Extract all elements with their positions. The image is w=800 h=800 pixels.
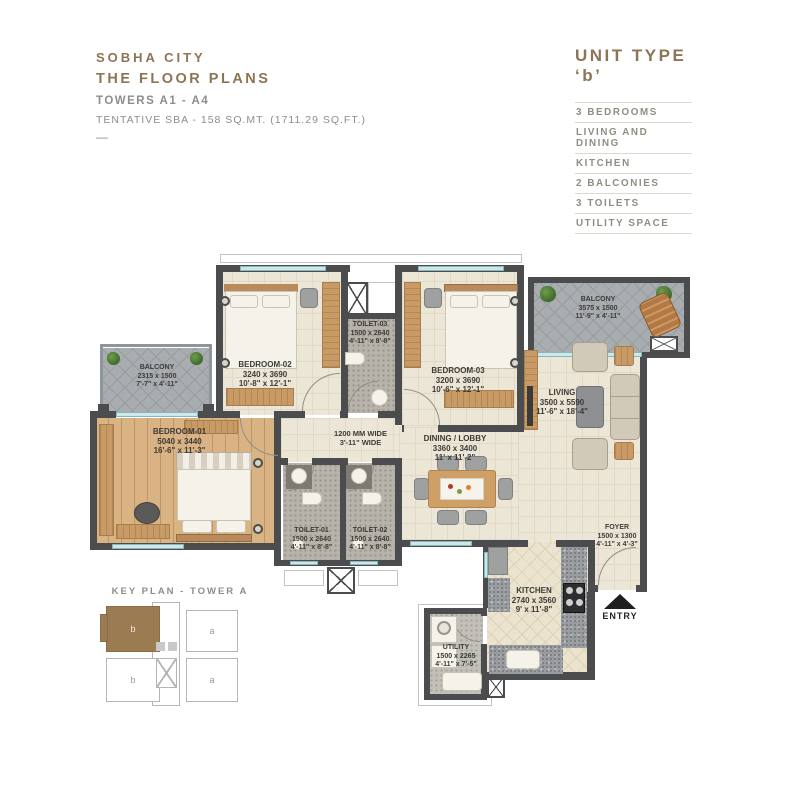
corridor-label: 1200 MM WIDE 3'-11" WIDE xyxy=(318,430,403,447)
bedroom3-label: BEDROOM-03 3200 x 3690 10'-6" x 12'-1" xyxy=(404,366,512,395)
bed1-pillow xyxy=(182,520,212,533)
sofa xyxy=(610,374,640,440)
wall-light xyxy=(253,524,263,534)
utility-label: UTILITY 1500 x 2265 4'-11" x 7'-5" xyxy=(427,644,485,670)
bed1-headboard xyxy=(176,534,252,542)
sunshade-ledge xyxy=(220,254,522,263)
balcony-right-label: BALCONY 3575 x 1500 11'-9" x 4'-11" xyxy=(548,296,648,322)
wall xyxy=(340,411,348,418)
bed2-pillow xyxy=(262,295,290,308)
unit-feature-list: 3 BEDROOMS LIVING AND DINING KITCHEN 2 B… xyxy=(575,102,705,234)
shaft-top xyxy=(346,282,368,316)
bed1-mattress xyxy=(177,469,251,521)
key-plan-unit-a1: a xyxy=(186,610,238,652)
window xyxy=(410,541,472,546)
burner xyxy=(576,587,583,594)
wall xyxy=(481,608,487,616)
wall-light xyxy=(253,458,263,468)
wall xyxy=(528,277,690,283)
side-table xyxy=(614,346,634,366)
balcony-pier xyxy=(203,404,214,416)
feature-item: LIVING AND DINING xyxy=(575,122,692,153)
key-plan-unit-b1: b xyxy=(106,606,160,652)
bed3-side-table xyxy=(424,288,442,308)
feature-item: 3 TOILETS xyxy=(575,193,692,213)
key-plan-unit-a2: a xyxy=(186,658,238,702)
toilet2-basin xyxy=(351,468,367,484)
food-plate xyxy=(457,489,462,494)
balcony-left-label: BALCONY 2315 x 1500 7'-7" x 4'-11" xyxy=(114,364,200,390)
washing-machine-door xyxy=(437,621,451,635)
dining-chair xyxy=(437,510,459,525)
wall xyxy=(640,352,647,592)
wall xyxy=(483,540,528,547)
toilet1-basin xyxy=(291,468,307,484)
unit-info-panel: UNIT TYPE ‘b’ 3 BEDROOMS LIVING AND DINI… xyxy=(575,46,705,234)
bedroom2-wardrobe xyxy=(226,388,294,406)
open-duct xyxy=(368,282,396,316)
header-left: SOBHA CITY THE FLOOR PLANS TOWERS A1 - A… xyxy=(96,50,456,144)
food-plate xyxy=(448,484,453,489)
wall xyxy=(587,592,595,680)
side-table xyxy=(614,442,634,460)
armchair xyxy=(572,438,608,470)
wall xyxy=(90,411,97,550)
key-plan-unit-b2: b xyxy=(106,658,160,702)
toilet3-shower xyxy=(371,389,388,406)
balcony-door-window xyxy=(116,412,198,417)
dash-divider: — xyxy=(96,130,456,144)
bedroom2-label: BEDROOM-02 3240 x 3690 10'-8" x 12'-1" xyxy=(210,360,320,389)
bed3-pillow xyxy=(450,295,478,308)
bed1-pillow xyxy=(216,520,246,533)
toilet2-label: TOILET-02 1500 x 2640 4'-11" x 8'-8" xyxy=(341,527,399,553)
bedroom1-desk xyxy=(116,524,170,539)
armchair xyxy=(572,342,608,372)
burner xyxy=(576,599,583,606)
living-label: LIVING 3500 x 5590 11'-6" x 18'-4" xyxy=(518,388,606,417)
bedroom3-dresser-side xyxy=(404,282,421,368)
window xyxy=(240,266,326,271)
unit-type-title: UNIT TYPE ‘b’ xyxy=(575,46,705,86)
bedroom1-label: BEDROOM-01 5040 x 3440 16'-6" x 11'-3" xyxy=(122,427,237,456)
wall xyxy=(281,458,288,465)
key-plan-unit-b1-tab xyxy=(100,614,108,642)
bed2-side-table xyxy=(300,288,318,308)
toilet3-label: TOILET-03 1500 x 2640 4'-11" x 8'-8" xyxy=(341,321,399,347)
towers-subtitle: TOWERS A1 - A4 xyxy=(96,95,456,107)
kitchen-label: KITCHEN 2740 x 3560 9' x 11'-8" xyxy=(496,586,572,615)
feature-item: 2 BALCONIES xyxy=(575,173,692,193)
wall xyxy=(341,313,402,319)
foyer-label: FOYER 1500 x 1300 4'-11" x 4'-3" xyxy=(586,524,648,550)
toilet2-sill xyxy=(358,570,398,586)
wall-light xyxy=(220,296,230,306)
dining-chair xyxy=(498,478,513,500)
wall xyxy=(424,694,487,700)
ac-ledge xyxy=(650,336,678,352)
key-plan: b a b a xyxy=(104,600,248,710)
entry-arrow-icon xyxy=(604,594,636,609)
key-plan-lift xyxy=(156,642,165,651)
dining-chair xyxy=(465,510,487,525)
floor-plan-page: SOBHA CITY THE FLOOR PLANS TOWERS A1 - A… xyxy=(0,0,800,800)
toilet1-wc xyxy=(302,492,322,505)
key-plan-lift xyxy=(168,642,177,651)
wall xyxy=(528,277,534,358)
toilet1-label: TOILET-01 1500 x 2640 4'-11" x 8'-8" xyxy=(283,527,340,553)
window xyxy=(112,544,184,549)
bed2-pillow xyxy=(230,295,258,308)
entry-label: ENTRY xyxy=(594,611,646,621)
balcony-pier xyxy=(98,404,109,416)
bed3-pillow xyxy=(482,295,510,308)
wall xyxy=(378,411,402,418)
project-name: SOBHA CITY xyxy=(96,50,456,65)
feature-item: UTILITY SPACE xyxy=(575,213,692,234)
page-title: THE FLOOR PLANS xyxy=(96,71,456,87)
key-plan-title: KEY PLAN - TOWER A xyxy=(108,586,252,597)
wall xyxy=(216,265,223,418)
dining-chair xyxy=(414,478,429,500)
wall xyxy=(588,585,598,592)
desk-chair xyxy=(134,502,160,524)
fridge xyxy=(488,547,508,575)
toilet-vent-window xyxy=(290,561,318,565)
toilet1-sill xyxy=(284,570,324,586)
table-runner xyxy=(440,478,484,500)
feature-item: KITCHEN xyxy=(575,153,692,173)
wall xyxy=(684,277,690,358)
bedroom1-wardrobe xyxy=(99,424,114,536)
toilet-vent-window xyxy=(350,561,378,565)
dining-label: DINING / LOBBY 3360 x 3400 11' x 11'-2" xyxy=(405,434,505,463)
shaft-toilets xyxy=(327,567,355,594)
toilet2-wc xyxy=(362,492,382,505)
wall-light xyxy=(510,296,520,306)
toilet3-wc xyxy=(345,352,365,365)
key-plan-stair xyxy=(156,658,177,688)
sba-subtitle: TENTATIVE SBA - 158 SQ.MT. (1711.29 SQ.F… xyxy=(96,114,456,126)
utility-sink xyxy=(442,672,482,691)
feature-item: 3 BEDROOMS xyxy=(575,102,692,122)
wall xyxy=(278,411,305,418)
food-plate xyxy=(466,485,471,490)
wall xyxy=(642,352,690,358)
wall xyxy=(438,425,524,432)
window xyxy=(418,266,504,271)
kitchen-sink xyxy=(506,650,540,669)
bedroom2-wardrobe-side xyxy=(322,282,340,368)
